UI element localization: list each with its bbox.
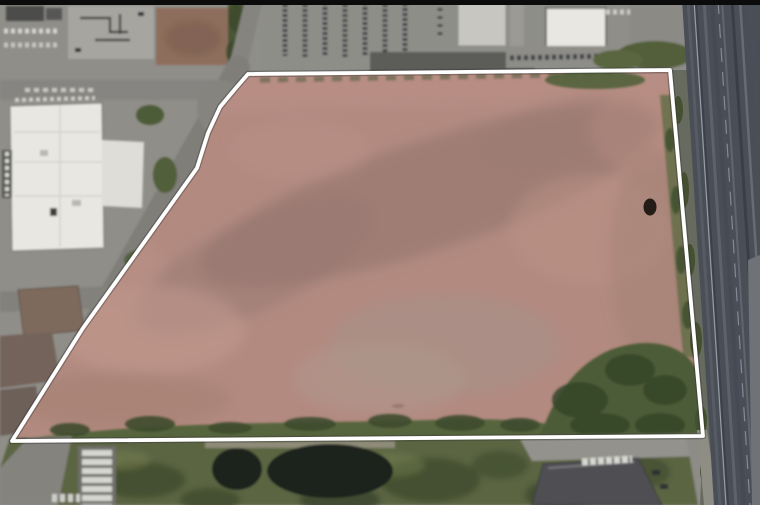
satellite-photo: [0, 0, 760, 505]
building-roof: [458, 0, 506, 46]
driveway: [510, 0, 524, 46]
street: [0, 80, 218, 100]
warehouse-roof: [10, 103, 104, 251]
small-building-roof: [46, 8, 62, 20]
car: [138, 12, 144, 16]
surroundings-bottom: [0, 433, 718, 505]
roof-unit: [72, 200, 81, 206]
roof-unit: [40, 150, 48, 156]
white-roof-building: [546, 8, 606, 48]
car: [75, 48, 81, 52]
green-strip: [593, 50, 643, 70]
aerial-scene: [0, 0, 760, 505]
car: [652, 470, 660, 475]
ground-mark: [392, 404, 404, 408]
brown-roof-building: [18, 286, 84, 336]
shrubs: [153, 157, 177, 193]
dirt-shade: [165, 20, 221, 56]
pond-large: [267, 444, 393, 498]
pond-small: [212, 448, 262, 490]
shrubs: [136, 105, 164, 125]
car: [660, 484, 668, 489]
dark-debris-object: [644, 199, 657, 216]
roof-hatch: [50, 208, 57, 216]
small-building-roof: [6, 6, 44, 21]
letterbox-bar: [0, 0, 760, 5]
warehouse-wing: [102, 140, 144, 208]
